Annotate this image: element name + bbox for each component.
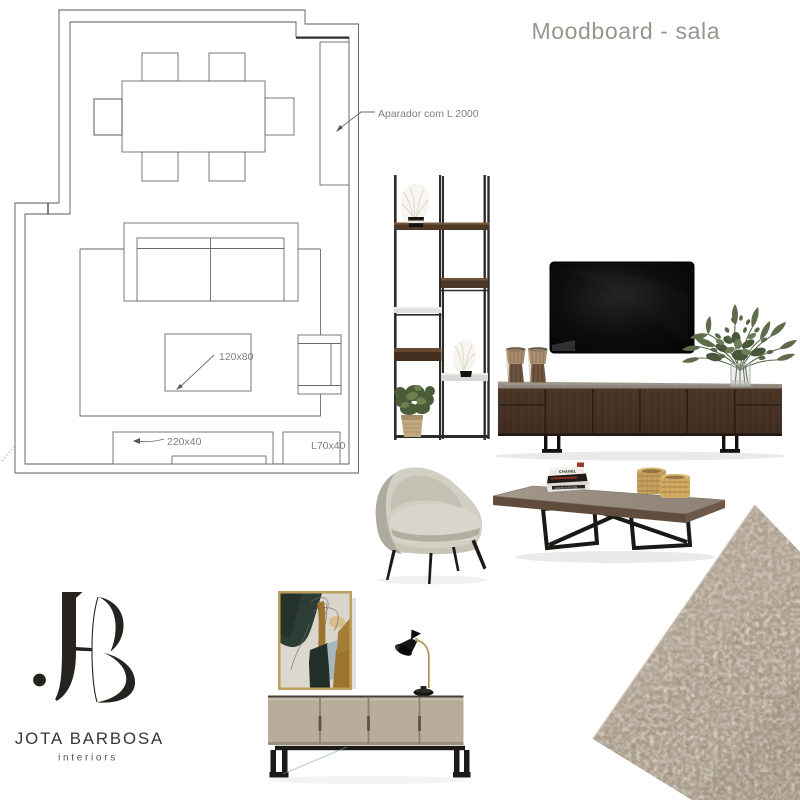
svg-text:LOUIS VUITTON: LOUIS VUITTON [555,485,578,490]
svg-text:JOTA BARBOSA: JOTA BARBOSA [15,729,164,748]
svg-text:Moodboard - sala: Moodboard - sala [532,18,721,44]
svg-text:CHANEL: CHANEL [559,469,577,474]
svg-text:120x80: 120x80 [219,351,254,363]
svg-text:L70x40: L70x40 [311,440,346,452]
svg-text:interiors: interiors [58,753,118,764]
svg-text:220x40: 220x40 [167,436,202,448]
svg-text:Aparador com L 2000: Aparador com L 2000 [378,108,479,120]
